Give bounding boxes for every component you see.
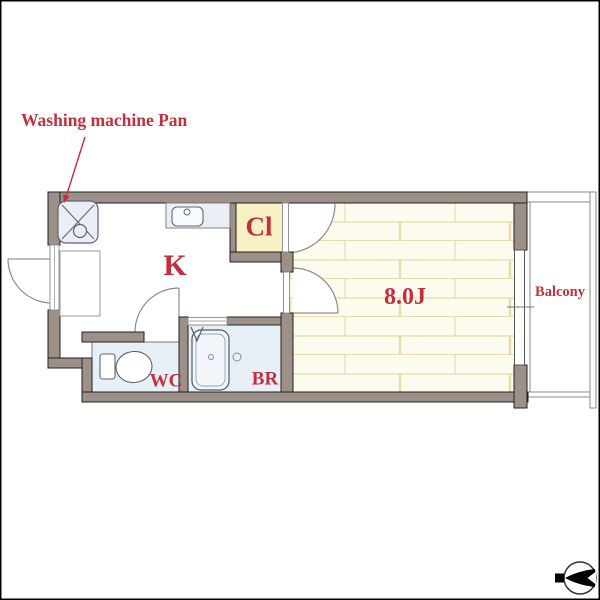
floor-plan: Washing machine Pan K Cl 8.0J WC BR Balc… [0, 0, 600, 600]
kitchen-sink-fixture [166, 203, 230, 228]
room-label-toilet: WC [150, 372, 183, 391]
washing-machine-pan-annotation: Washing machine Pan [21, 112, 187, 130]
washing-machine-pan-icon [58, 201, 98, 243]
floor-plan-drawing [0, 0, 600, 600]
compass-icon [555, 562, 596, 594]
room-label-main-room: 8.0J [384, 285, 426, 309]
room-label-closet: Cl [246, 214, 273, 241]
room-label-kitchen: K [163, 251, 186, 281]
room-label-bath: BR [252, 370, 278, 389]
room-label-balcony: Balcony [535, 285, 585, 300]
entrance-step-outline [60, 251, 100, 316]
balcony-railing [527, 192, 596, 408]
